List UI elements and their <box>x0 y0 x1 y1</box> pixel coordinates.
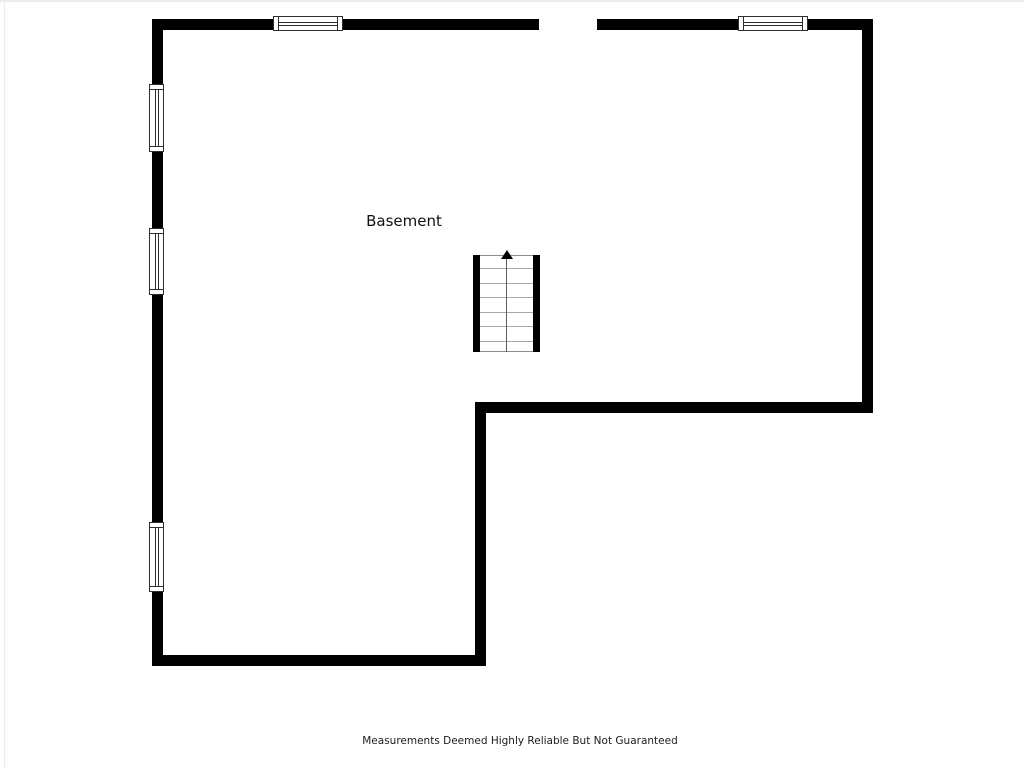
wall-right <box>862 19 873 413</box>
disclaimer-text: Measurements Deemed Highly Reliable But … <box>8 735 1024 747</box>
wall-bottom-left-section <box>152 655 486 666</box>
room-label: Basement <box>366 212 442 230</box>
window-icon-top-1 <box>273 16 343 31</box>
wall-bottom-right-section <box>475 402 873 413</box>
up-arrow-icon <box>501 250 513 259</box>
wall-top-left-segment <box>152 19 539 30</box>
staircase <box>473 255 540 352</box>
stair-centerline <box>506 255 507 352</box>
wall-inner-step <box>475 402 486 666</box>
floorplan-page: Basement Measurements Deemed Highly Reli… <box>0 0 1024 768</box>
stair-sidewall-right <box>533 255 540 352</box>
stair-sidewall-left <box>473 255 480 352</box>
page-edge-line-top <box>0 0 1024 2</box>
window-icon-left-1 <box>149 84 164 152</box>
window-icon-left-3 <box>149 522 164 592</box>
wall-top-right-segment <box>597 19 873 30</box>
window-icon-top-2 <box>738 16 808 31</box>
page-edge-line-left <box>4 0 5 768</box>
window-icon-left-2 <box>149 228 164 295</box>
